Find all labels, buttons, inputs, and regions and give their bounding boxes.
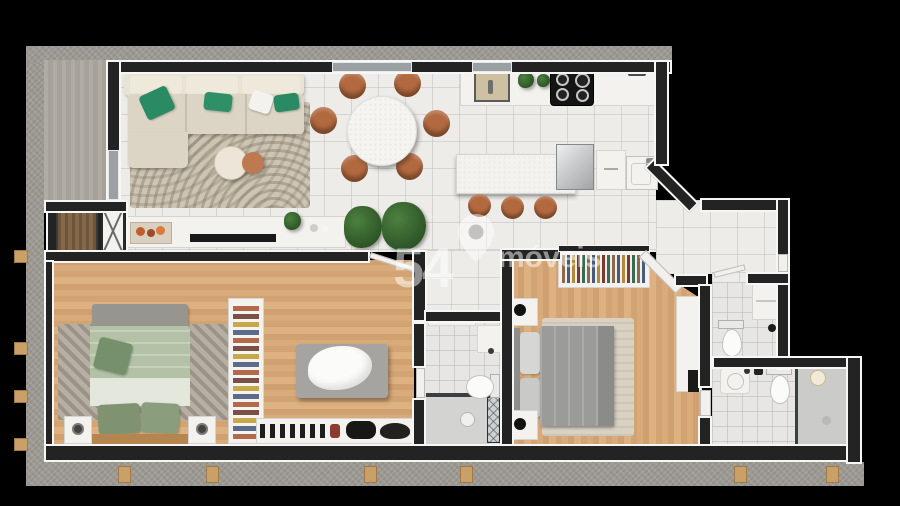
toilet2-tank <box>718 320 744 329</box>
shell-left <box>26 46 44 486</box>
sink-faucet-icon <box>488 80 493 94</box>
black-lamp-icon <box>514 418 526 430</box>
dining-chair <box>339 72 366 99</box>
toilet3-bowl <box>770 375 790 404</box>
master-sheet <box>90 378 190 406</box>
toilet1-bowl <box>466 375 494 399</box>
handbag <box>380 423 410 439</box>
wall-kitchen-right <box>654 60 669 166</box>
green-pillow <box>203 92 233 113</box>
location-pin-icon <box>458 214 494 262</box>
shower2-drain-icon <box>822 416 831 425</box>
wall-bottom <box>44 444 848 462</box>
burner-icon <box>556 88 569 101</box>
window <box>472 62 512 72</box>
watermark-name: móveis <box>498 243 601 273</box>
bar-stool <box>534 196 557 219</box>
bed2-blanket <box>598 326 614 426</box>
dining-chair <box>423 110 450 137</box>
wood-bracket <box>14 250 28 263</box>
dining-chair <box>394 70 421 97</box>
pendant-light-icon <box>810 370 826 386</box>
coffee-table-terracotta <box>242 152 264 174</box>
bar-stool <box>501 196 524 219</box>
balcony-sliding-door <box>108 150 119 200</box>
wall-bed2-right-upper <box>698 284 712 388</box>
balcony-floor <box>44 60 108 202</box>
wood-bracket <box>14 438 28 451</box>
wall-bath2-top <box>712 356 862 369</box>
burner-icon <box>575 73 590 88</box>
handbag <box>346 421 376 439</box>
dining-table <box>347 96 417 166</box>
black-lamp-icon <box>514 304 526 316</box>
wood-bracket <box>14 342 28 355</box>
cabinet-handle-icon <box>604 168 618 170</box>
storage-shaft <box>56 210 98 252</box>
toilet2-bowl <box>722 329 742 357</box>
wood-bracket <box>826 466 839 483</box>
decor-fruit <box>156 226 165 235</box>
shoe-pair-red <box>330 424 340 438</box>
toilet-brush-icon <box>768 324 776 332</box>
hall-end-door <box>778 254 788 272</box>
bathroom2-door <box>700 390 711 416</box>
sofa-back-cushion <box>186 76 238 94</box>
soap-decor <box>754 368 763 375</box>
dining-chair <box>310 107 337 134</box>
bathroom1-door <box>416 368 425 398</box>
wood-bracket <box>14 390 28 403</box>
wood-bracket <box>118 466 131 483</box>
wall-core-top <box>44 200 128 213</box>
wall-powder-top <box>746 272 790 285</box>
green-pillow <box>273 92 300 112</box>
window <box>332 62 412 72</box>
wall-bath1-left-upper <box>412 322 426 368</box>
wood-bracket <box>206 466 219 483</box>
refrigerator <box>556 144 594 190</box>
wood-bracket <box>734 466 747 483</box>
shoe-row <box>260 424 326 438</box>
shower1-drain-icon <box>460 412 475 427</box>
wall-bath1-top <box>424 310 512 323</box>
tv-soundbar <box>190 234 276 242</box>
foot-bench <box>92 304 188 328</box>
shower1-door <box>487 397 500 443</box>
shower1-floor <box>426 396 490 444</box>
decor-fruit <box>136 227 145 236</box>
cabinet-shelf-line <box>756 300 776 302</box>
master-pillow <box>97 403 141 435</box>
wall-bed2-left <box>500 248 514 452</box>
master-headboard <box>92 434 188 444</box>
burner-icon <box>556 73 569 86</box>
watermark-number: 54 <box>393 240 451 296</box>
decor-vase <box>310 224 318 232</box>
elevator <box>101 208 125 254</box>
wall-bath2-right <box>846 356 862 464</box>
cooktop <box>551 69 593 105</box>
sofa-back-cushion <box>242 76 300 94</box>
wall-left-inner <box>44 260 54 446</box>
elevator-x-icon <box>103 210 123 252</box>
decor-vase <box>322 226 328 232</box>
shower2-glass <box>795 366 798 444</box>
sofa-chaise <box>128 132 188 168</box>
decor-fruit <box>147 229 155 237</box>
table-lamp-icon <box>72 423 84 435</box>
wood-bracket <box>364 466 377 483</box>
master-pillow <box>140 402 180 434</box>
burner-icon <box>576 89 589 102</box>
kitchen-cabinet <box>596 150 626 190</box>
basin-bowl-icon <box>727 373 744 390</box>
table-lamp-icon <box>196 423 208 435</box>
bed2-pillow <box>520 332 540 374</box>
wood-bracket <box>460 466 473 483</box>
floorplan-render: 54 móveis <box>0 0 900 506</box>
wall-hall-south <box>44 250 370 263</box>
vanity-faucet-icon <box>488 348 494 354</box>
